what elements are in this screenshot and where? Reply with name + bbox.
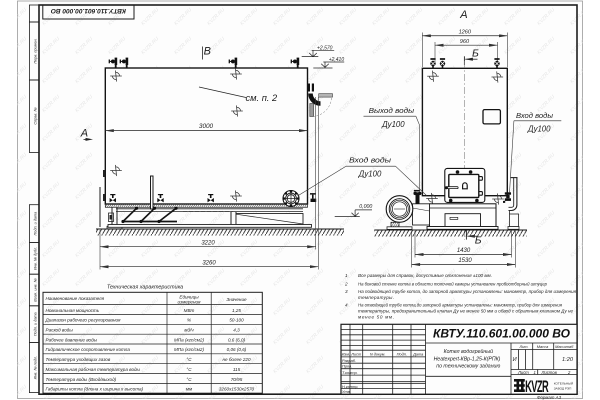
svg-text:1530: 1530 — [458, 258, 472, 264]
svg-text:менее 50 мм.: менее 50 мм. — [358, 314, 394, 319]
svg-text:На подводящей трубе котла, д: На подводящей трубе котла, до запорной а… — [358, 288, 577, 294]
svg-text:температуры.: температуры. — [358, 295, 394, 300]
svg-text:КВТУ.110.601.00.000 ВО: КВТУ.110.601.00.000 ВО — [50, 7, 126, 14]
svg-text:Расход воды: Расход воды — [46, 328, 74, 333]
svg-text:0,000: 0,000 — [359, 204, 372, 210]
svg-text:Лит.: Лит. — [518, 344, 528, 349]
svg-text:Выход воды: Выход воды — [369, 106, 415, 115]
svg-text:Дата: Дата — [412, 351, 424, 356]
svg-text:Heatexpert-КВр-1,25-К(РПК): Heatexpert-КВр-1,25-К(РПК) — [434, 356, 501, 362]
svg-text:Лист: Лист — [350, 351, 362, 356]
svg-text:КВТУ.110.601.00.000 ВО: КВТУ.110.601.00.000 ВО — [433, 326, 571, 340]
svg-text:Т.контр.: Т.контр. — [342, 370, 358, 375]
svg-text:м3/ч: м3/ч — [184, 328, 194, 333]
svg-text:по техническому заданию: по техническому заданию — [436, 364, 500, 370]
svg-text:Подп. и дата: Подп. и дата — [33, 312, 37, 336]
svg-text:1260: 1260 — [459, 29, 472, 35]
svg-text:Максимальная рабочая температу: Максимальная рабочая температура воды — [46, 367, 141, 372]
svg-text:4: 4 — [345, 303, 348, 308]
svg-text:Котел водогрейный: Котел водогрейный — [444, 348, 493, 355]
svg-text:Б: Б — [472, 47, 479, 59]
svg-text:Диапазон рабочего регулировани: Диапазон рабочего регулирования — [45, 318, 122, 323]
svg-text:3000: 3000 — [199, 123, 214, 130]
svg-text:Н.контр.: Н.контр. — [342, 384, 358, 389]
svg-text:На отводящей трубе котла,до за: На отводящей трубе котла,до запорной арм… — [358, 302, 563, 308]
svg-text:Изм.: Изм. — [342, 351, 350, 356]
svg-text:+2,570: +2,570 — [317, 45, 333, 51]
svg-text:4,3: 4,3 — [233, 328, 240, 333]
svg-text:На боковой стенке котла в обла: На боковой стенке котла в области топочн… — [358, 281, 547, 287]
svg-text:Температура воды (Вход/выход): Температура воды (Вход/выход) — [46, 377, 117, 382]
svg-text:Ду100: Ду100 — [527, 125, 551, 134]
svg-text:температуры, предохранительный: температуры, предохранительный клапан Ду… — [358, 308, 573, 314]
svg-text:МПа (кгс/см2): МПа (кгс/см2) — [174, 337, 204, 342]
svg-text:Подп.: Подп. — [397, 351, 407, 356]
svg-text:Техническая характеристика: Техническая характеристика — [107, 285, 183, 291]
svg-text:Листов: Листов — [541, 370, 558, 375]
svg-text:Масса: Масса — [537, 344, 549, 349]
svg-text:3260: 3260 — [202, 260, 216, 266]
svg-text:1,25: 1,25 — [232, 308, 241, 313]
svg-text:3220: 3220 — [201, 240, 215, 246]
svg-text:В: В — [204, 46, 211, 58]
svg-text:ЗАВОД РЭП: ЗАВОД РЭП — [554, 386, 572, 390]
svg-text:%: % — [187, 318, 191, 323]
svg-text:не более 220: не более 220 — [222, 357, 250, 362]
svg-text:3260х1530х2570: 3260х1530х2570 — [219, 387, 255, 392]
svg-text:1: 1 — [345, 273, 348, 278]
svg-text:+2,410: +2,410 — [329, 57, 345, 63]
svg-text:Перв. примен.: Перв. примен. — [34, 38, 38, 63]
svg-text:А: А — [80, 127, 88, 139]
svg-text:Ду100: Ду100 — [381, 120, 405, 129]
svg-text:960: 960 — [460, 39, 470, 45]
svg-text:Подп. и дата: Подп. и дата — [33, 212, 37, 236]
svg-text:Разраб.: Разраб. — [342, 358, 356, 363]
svg-text:Пров.: Пров. — [342, 364, 352, 369]
svg-text:Масштаб: Масштаб — [555, 344, 574, 349]
svg-text:Б: Б — [475, 235, 482, 247]
svg-text:Температура уходящих газов: Температура уходящих газов — [46, 357, 111, 362]
svg-text:Рабочее давление воды: Рабочее давление воды — [46, 337, 98, 342]
svg-text:2: 2 — [344, 282, 348, 287]
svg-text:Взам. инв. №: Взам. инв. № — [33, 278, 37, 301]
svg-text:3: 3 — [345, 289, 348, 294]
svg-text:Справ. №: Справ. № — [34, 107, 38, 124]
svg-text:°С: °С — [186, 377, 192, 382]
svg-text:N докум.: N докум. — [370, 351, 386, 356]
svg-text:Инв. № подл.: Инв. № подл. — [33, 356, 37, 380]
svg-text:Вход воды: Вход воды — [349, 156, 391, 165]
svg-text:70/95: 70/95 — [231, 377, 243, 382]
svg-text:Ду100: Ду100 — [358, 169, 382, 178]
svg-text:1: 1 — [534, 370, 536, 375]
svg-text:115: 115 — [233, 367, 241, 372]
svg-text:Габариты котла (длина х ширина: Габариты котла (длина х ширина х высота) — [46, 387, 144, 392]
svg-text:KVZR: KVZR — [525, 377, 549, 396]
svg-text:КОТЕЛЬНЫЙ: КОТЕЛЬНЫЙ — [554, 382, 573, 386]
svg-text:Значение: Значение — [226, 297, 247, 302]
svg-text:0,6 (6,0): 0,6 (6,0) — [228, 337, 246, 342]
svg-text:Инв. № дубл.: Инв. № дубл. — [34, 247, 38, 270]
svg-text:А: А — [459, 9, 467, 21]
svg-text:Гидравлическое сопротивление к: Гидравлическое сопротивление котла — [46, 347, 131, 352]
svg-text:Вход воды: Вход воды — [516, 111, 553, 120]
svg-text:1:20: 1:20 — [562, 357, 574, 363]
svg-text:Номинальная мощность: Номинальная мощность — [46, 308, 100, 313]
svg-text:И: И — [513, 357, 517, 363]
svg-text:МПа (кгс/см2): МПа (кгс/см2) — [174, 347, 204, 352]
svg-text:Лист: Лист — [517, 370, 529, 375]
svg-text:Утв.: Утв. — [342, 389, 351, 394]
svg-text:50-100: 50-100 — [229, 318, 244, 323]
svg-text:Формат А3: Формат А3 — [537, 395, 562, 400]
svg-text:МВт: МВт — [184, 308, 195, 313]
svg-text:измерения: измерения — [178, 299, 202, 304]
svg-text:мм: мм — [186, 387, 193, 392]
svg-text:Все размеры для справок, допус: Все размеры для справок, допустимые откл… — [358, 273, 492, 278]
svg-text:см. п. 2: см. п. 2 — [246, 93, 278, 103]
svg-text:Наименование показателя: Наименование показателя — [46, 296, 105, 301]
svg-text:1430: 1430 — [457, 248, 471, 254]
svg-text:°С: °С — [186, 357, 192, 362]
svg-text:0,06 (0,6): 0,06 (0,6) — [227, 347, 247, 352]
svg-text:°С: °С — [186, 367, 192, 372]
